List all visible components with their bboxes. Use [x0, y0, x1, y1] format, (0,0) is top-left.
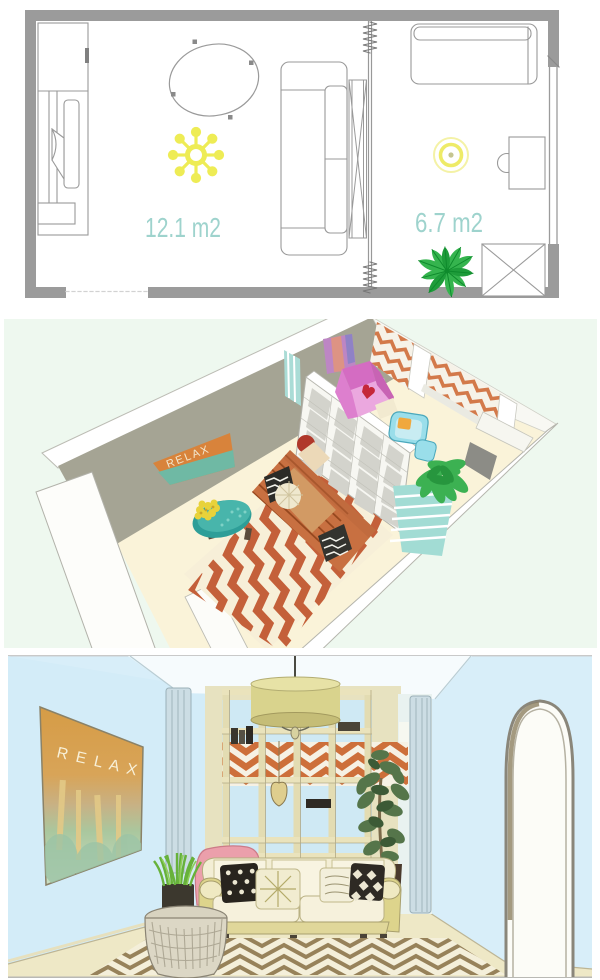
svg-text:6.7 m2: 6.7 m2	[415, 207, 483, 238]
svg-text:12.1 m2: 12.1 m2	[145, 212, 221, 243]
